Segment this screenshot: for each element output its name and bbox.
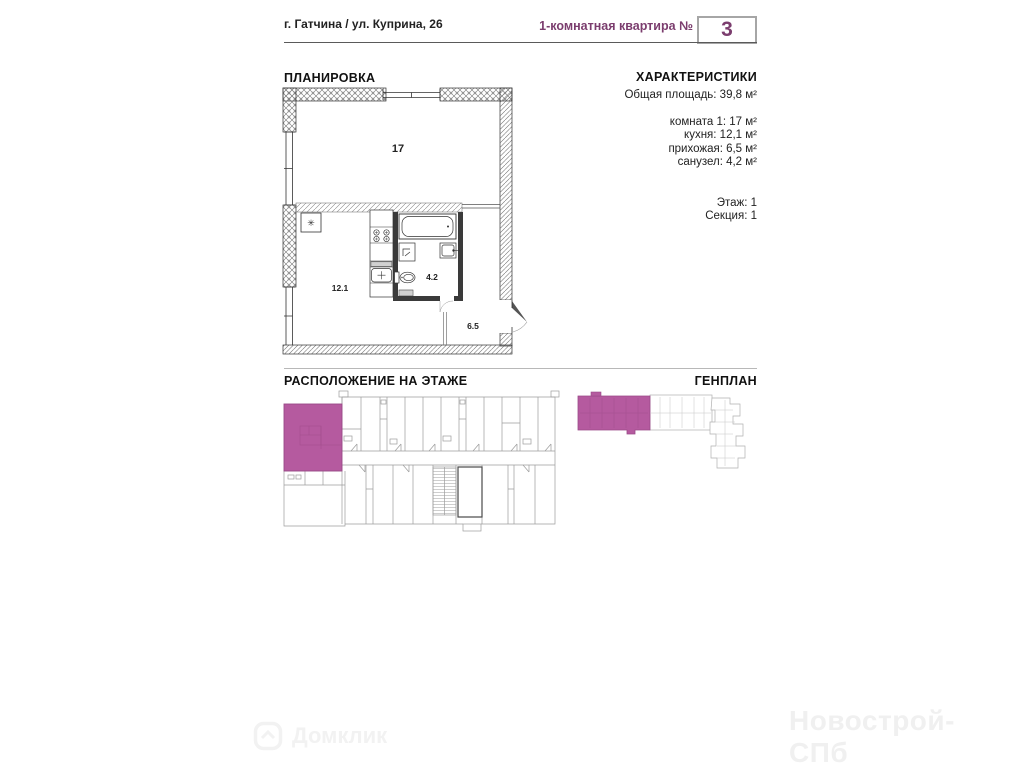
- room-area-line: прихожая: 6,5 м²: [497, 143, 757, 157]
- room-label-bathroom: 4.2: [426, 272, 438, 282]
- apartment-number: 3: [721, 18, 733, 42]
- watermark-left-text: Домклик: [292, 723, 387, 749]
- house-logo-icon: [252, 720, 284, 752]
- floor-line: Этаж: 1: [497, 197, 757, 211]
- washer: [399, 243, 415, 261]
- room-label-main: 17: [392, 143, 404, 155]
- section-divider: [284, 368, 757, 369]
- bathroom-fixtures: [395, 214, 461, 296]
- floor-location-plan: [283, 389, 561, 535]
- apartment-number-box: 3: [697, 16, 757, 44]
- characteristics-list: Общая площадь: 39,8 м² комната 1: 17 м² …: [497, 89, 757, 224]
- bathtub: [399, 214, 456, 239]
- watermark-right-text: Новострой-СПб: [789, 705, 1014, 768]
- room-area-line: санузел: 4,2 м²: [497, 156, 757, 170]
- room-label-kitchen: 12.1: [332, 283, 349, 293]
- watermark-left: Домклик: [252, 720, 387, 752]
- total-area: Общая площадь: 39,8 м²: [497, 89, 757, 103]
- toilet: [395, 272, 416, 283]
- genplan-highlighted-section: [578, 392, 650, 434]
- kitchen-fixtures: [370, 210, 393, 297]
- bath-sink: [440, 243, 460, 258]
- kitchen-hall-divider: [444, 312, 447, 345]
- vent-grille: [371, 262, 392, 267]
- room-hall-opening: [462, 205, 500, 209]
- apartment-type-label: 1-комнатная квартира №: [539, 19, 693, 33]
- bathroom-door: [440, 301, 453, 312]
- entrance-door: [512, 300, 527, 333]
- address-text: г. Гатчина / ул. Куприна, 26: [284, 17, 443, 31]
- genplan-drawing: [575, 386, 760, 470]
- plan-section-title: ПЛАНИРОВКА: [284, 71, 375, 85]
- vent-symbol: ✳: [307, 218, 315, 228]
- entrance-opening: [500, 300, 513, 333]
- floor-location-title: РАСПОЛОЖЕНИЕ НА ЭТАЖЕ: [284, 374, 467, 388]
- header-rule: [284, 42, 757, 43]
- highlighted-apartment: [284, 404, 342, 471]
- stair-core: [458, 467, 482, 517]
- characteristics-section-title: ХАРАКТЕРИСТИКИ: [636, 70, 757, 84]
- section-line: Секция: 1: [497, 210, 757, 224]
- room-area-line: комната 1: 17 м²: [497, 116, 757, 130]
- vent-box: ✳: [301, 213, 321, 232]
- room-label-hallway: 6.5: [467, 321, 479, 331]
- apartment-datasheet-page: г. Гатчина / ул. Куприна, 26 1-комнатная…: [0, 0, 1014, 768]
- room-area-line: кухня: 12,1 м²: [497, 129, 757, 143]
- floorplan-drawing: ✳: [280, 84, 530, 362]
- towel-rail: [399, 290, 413, 296]
